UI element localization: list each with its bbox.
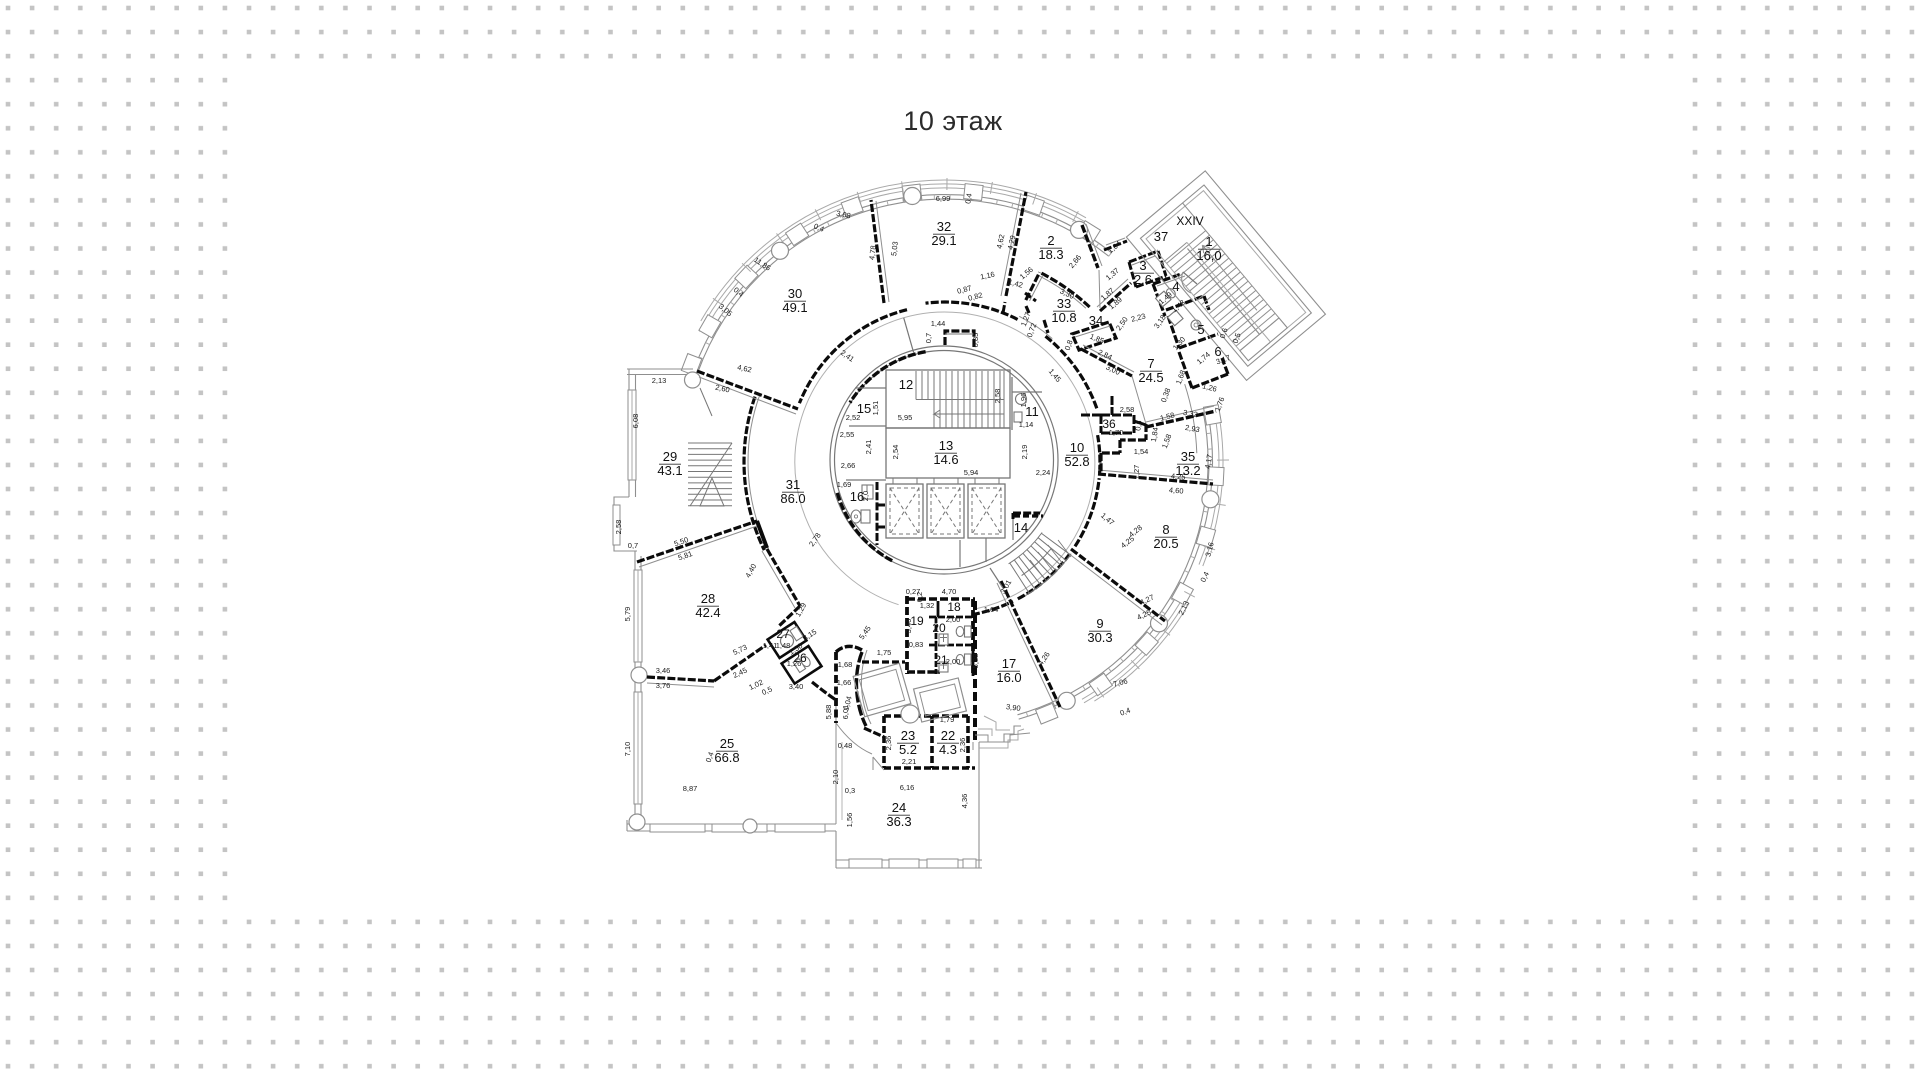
svg-text:23: 23: [901, 728, 915, 743]
svg-text:3,46: 3,46: [656, 666, 671, 675]
svg-text:8: 8: [1162, 522, 1169, 537]
svg-text:10 этаж: 10 этаж: [903, 106, 1002, 136]
svg-text:2,54: 2,54: [891, 445, 900, 460]
svg-text:0,4: 0,4: [963, 193, 974, 205]
svg-text:2,00: 2,00: [946, 615, 961, 624]
svg-text:1,44: 1,44: [931, 319, 946, 328]
svg-text:2,13: 2,13: [652, 376, 667, 385]
svg-text:8,87: 8,87: [683, 784, 698, 793]
svg-text:20: 20: [932, 621, 946, 635]
svg-text:36.3: 36.3: [886, 814, 911, 829]
svg-text:14.6: 14.6: [933, 452, 958, 467]
svg-text:1,51: 1,51: [871, 401, 880, 416]
svg-text:1,75: 1,75: [877, 648, 892, 657]
svg-text:34: 34: [1089, 313, 1103, 328]
svg-text:49.1: 49.1: [782, 300, 807, 315]
svg-text:4,70: 4,70: [942, 587, 957, 596]
svg-text:XXIV: XXIV: [1176, 214, 1203, 228]
svg-text:6,16: 6,16: [900, 783, 915, 792]
svg-text:2,55: 2,55: [840, 430, 855, 439]
svg-text:66.8: 66.8: [714, 750, 739, 765]
svg-text:2,36: 2,36: [958, 738, 967, 753]
svg-text:5,88: 5,88: [824, 705, 833, 720]
svg-text:32: 32: [937, 219, 951, 234]
svg-text:2,36: 2,36: [884, 736, 893, 751]
svg-text:1,68: 1,68: [838, 660, 853, 669]
svg-text:52.8: 52.8: [1064, 454, 1089, 469]
svg-text:1,79: 1,79: [940, 715, 955, 724]
svg-text:10: 10: [1070, 440, 1084, 455]
svg-text:5,79: 5,79: [623, 607, 632, 622]
svg-text:2: 2: [1047, 233, 1054, 248]
svg-text:0,48: 0,48: [838, 741, 853, 750]
svg-text:1,56: 1,56: [845, 813, 854, 828]
svg-text:7,10: 7,10: [623, 742, 632, 757]
svg-text:1,27: 1,27: [1132, 465, 1141, 480]
svg-text:22: 22: [941, 728, 955, 743]
svg-text:1,14: 1,14: [1019, 420, 1034, 429]
svg-text:2,41: 2,41: [864, 440, 873, 455]
svg-text:5.2: 5.2: [899, 742, 917, 757]
svg-text:4,25: 4,25: [1171, 471, 1186, 481]
svg-text:25: 25: [720, 736, 734, 751]
svg-text:12: 12: [899, 377, 913, 392]
svg-text:1: 1: [1205, 234, 1212, 249]
svg-text:18.3: 18.3: [1038, 247, 1063, 262]
svg-text:4.3: 4.3: [939, 742, 957, 757]
svg-text:0,2: 0,2: [915, 592, 924, 602]
svg-text:30.3: 30.3: [1087, 630, 1112, 645]
svg-text:20.5: 20.5: [1153, 536, 1178, 551]
svg-text:6,08: 6,08: [631, 414, 640, 429]
svg-text:16,0: 16,0: [1196, 248, 1221, 263]
svg-text:10.8: 10.8: [1051, 310, 1076, 325]
svg-text:2,52: 2,52: [846, 413, 861, 422]
svg-text:2,0: 2,0: [861, 491, 870, 501]
svg-text:24.5: 24.5: [1138, 370, 1163, 385]
svg-text:2.6: 2.6: [1134, 272, 1152, 287]
svg-text:24: 24: [892, 800, 906, 815]
svg-text:1,66: 1,66: [837, 678, 852, 687]
svg-text:16.0: 16.0: [996, 670, 1021, 685]
svg-text:14: 14: [1014, 520, 1028, 535]
svg-text:1,64: 1,64: [984, 605, 999, 614]
svg-text:1,69: 1,69: [837, 480, 852, 489]
svg-text:3,46: 3,46: [904, 619, 913, 634]
svg-text:0,7: 0,7: [628, 541, 638, 550]
svg-text:2,66: 2,66: [841, 461, 856, 470]
svg-text:42.4: 42.4: [695, 605, 720, 620]
svg-text:4: 4: [1172, 279, 1179, 294]
svg-text:3,40: 3,40: [789, 682, 804, 691]
svg-text:4,60: 4,60: [1169, 485, 1184, 495]
svg-text:86.0: 86.0: [780, 491, 805, 506]
svg-text:6,99: 6,99: [936, 194, 951, 203]
svg-text:4,78: 4,78: [867, 245, 878, 261]
svg-text:5,03: 5,03: [889, 241, 900, 257]
svg-text:2,58: 2,58: [1120, 405, 1135, 414]
svg-text:0,7: 0,7: [924, 333, 933, 343]
svg-text:37: 37: [1154, 229, 1168, 244]
svg-text:2,10: 2,10: [831, 770, 840, 785]
svg-text:2,24: 2,24: [1036, 468, 1051, 477]
svg-text:2,58: 2,58: [993, 389, 1002, 404]
svg-text:2,00: 2,00: [946, 657, 961, 666]
svg-text:13: 13: [939, 438, 953, 453]
svg-text:1,70: 1,70: [1109, 428, 1124, 437]
svg-text:43.1: 43.1: [657, 463, 682, 478]
svg-text:3,76: 3,76: [656, 681, 671, 690]
svg-text:9: 9: [1096, 616, 1103, 631]
svg-text:2,21: 2,21: [902, 757, 917, 766]
svg-text:27: 27: [776, 627, 790, 641]
svg-text:0,5: 0,5: [1133, 420, 1144, 432]
svg-text:1,96: 1,96: [1019, 393, 1028, 408]
svg-text:4,36: 4,36: [960, 794, 969, 809]
svg-text:5,94: 5,94: [964, 468, 979, 477]
svg-text:2,19: 2,19: [1020, 445, 1029, 460]
svg-text:0,85: 0,85: [971, 333, 980, 348]
svg-text:0,3: 0,3: [845, 786, 855, 795]
svg-text:2,58: 2,58: [614, 520, 623, 535]
svg-text:28: 28: [701, 591, 715, 606]
svg-text:18: 18: [947, 600, 961, 614]
svg-text:1,54: 1,54: [1134, 447, 1149, 456]
svg-text:17: 17: [1002, 656, 1016, 671]
svg-text:30: 30: [788, 286, 802, 301]
svg-text:0,83: 0,83: [909, 640, 924, 649]
svg-text:29.1: 29.1: [931, 233, 956, 248]
svg-text:5,95: 5,95: [898, 413, 913, 422]
svg-text:5,88: 5,88: [971, 654, 980, 669]
svg-text:29: 29: [663, 449, 677, 464]
svg-text:5: 5: [1197, 322, 1204, 337]
svg-text:31: 31: [786, 477, 800, 492]
svg-text:3: 3: [1139, 258, 1146, 273]
svg-text:1,26: 1,26: [787, 659, 802, 668]
svg-text:7: 7: [1147, 356, 1154, 371]
svg-text:35: 35: [1181, 449, 1195, 464]
